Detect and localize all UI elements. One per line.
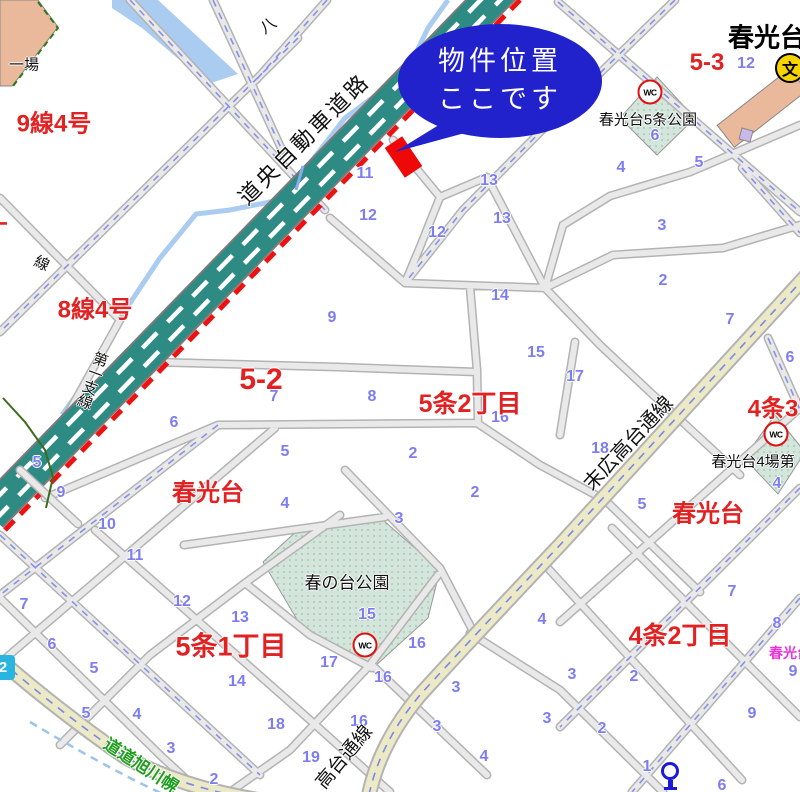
map-label: 春光台4場第 bbox=[711, 451, 794, 472]
lot-number: 4 bbox=[773, 475, 782, 493]
toilet-icon: WC bbox=[764, 422, 789, 447]
lot-number: 1 bbox=[643, 758, 652, 776]
map-label: 丁 bbox=[0, 213, 8, 248]
map-label: 春光台 bbox=[769, 643, 800, 663]
map-label: 5-2 bbox=[239, 363, 282, 397]
route-number-badge: 2 bbox=[0, 655, 15, 680]
hydrant-stem bbox=[668, 780, 673, 787]
lot-number: 3 bbox=[568, 666, 577, 684]
lot-number: 3 bbox=[167, 740, 176, 758]
lot-number: 3 bbox=[658, 217, 667, 235]
map-label: 4条2丁目 bbox=[629, 616, 732, 652]
lot-number: 11 bbox=[357, 165, 374, 183]
map-label: 春光台5条公園 bbox=[599, 109, 697, 130]
lot-number: 5 bbox=[695, 154, 704, 172]
lot-number: 5 bbox=[638, 496, 647, 514]
lot-number: 12 bbox=[737, 55, 755, 73]
map-label: 春光台 bbox=[172, 473, 244, 508]
map-label: 9線4号 bbox=[17, 104, 92, 139]
lot-number: 6 bbox=[718, 777, 727, 792]
toilet-icon: WC bbox=[353, 633, 378, 658]
lot-number: 9 bbox=[57, 484, 66, 502]
lot-number: 6 bbox=[786, 349, 795, 367]
lot-number: 9 bbox=[328, 309, 337, 327]
lot-number: 6 bbox=[170, 414, 179, 432]
map-stage: 9線4号8線4号丁5-25条2丁目4条3丁目春光台春光台5条1丁目4条2丁目5-… bbox=[0, 0, 800, 792]
lot-number: 2 bbox=[471, 484, 480, 502]
lot-number: 5 bbox=[281, 443, 290, 461]
lot-number: 12 bbox=[428, 224, 446, 242]
lot-number: 6 bbox=[651, 127, 660, 145]
lot-number: 2 bbox=[210, 771, 219, 789]
map-label: 春光台 bbox=[672, 494, 744, 529]
hydrant-icon bbox=[661, 762, 679, 792]
map-label: 4条3丁目 bbox=[748, 389, 800, 424]
callout-line-2: ここです bbox=[438, 81, 562, 119]
lot-number: 16 bbox=[408, 635, 426, 653]
lot-number: 7 bbox=[20, 596, 29, 614]
lot-number: 4 bbox=[617, 159, 626, 177]
lot-number: 5 bbox=[82, 705, 91, 723]
lot-number: 14 bbox=[491, 287, 509, 305]
lot-number: 3 bbox=[543, 710, 552, 728]
lot-number: 3 bbox=[433, 718, 442, 736]
lot-number: 6 bbox=[48, 636, 57, 654]
hydrant-ball bbox=[661, 762, 679, 780]
lot-number: 11 bbox=[127, 547, 144, 565]
lot-number: 16 bbox=[374, 669, 392, 687]
lot-number: 4 bbox=[480, 748, 489, 766]
lot-number: 17 bbox=[320, 654, 338, 672]
lot-number: 5 bbox=[33, 454, 42, 472]
lot-number: 4 bbox=[538, 611, 547, 629]
lot-number: 8 bbox=[773, 615, 782, 633]
callout-bubble: 物件位置 ここです bbox=[398, 24, 602, 138]
map-label: 5条2丁目 bbox=[419, 384, 522, 420]
lot-number: 9 bbox=[748, 705, 757, 723]
lot-number: 15 bbox=[358, 606, 376, 624]
lot-number: 4 bbox=[281, 495, 290, 513]
lot-number: 14 bbox=[228, 673, 246, 691]
map-label: 一場 bbox=[9, 54, 39, 75]
lot-number: 13 bbox=[493, 210, 511, 228]
lot-number: 7 bbox=[726, 311, 735, 329]
toilet-icon: WC bbox=[638, 80, 663, 105]
lot-number: 9 bbox=[789, 663, 798, 681]
school-icon: 文 bbox=[775, 53, 800, 83]
lot-number: 2 bbox=[659, 272, 668, 290]
lot-number: 8 bbox=[368, 388, 377, 406]
map-label: 5条1丁目 bbox=[175, 625, 286, 664]
lot-number: 13 bbox=[480, 172, 498, 190]
lot-number: 4 bbox=[133, 706, 142, 724]
lot-number: 3 bbox=[452, 679, 461, 697]
map-label: 5-3 bbox=[690, 49, 725, 77]
lot-number: 3 bbox=[395, 510, 404, 528]
lot-number: 7 bbox=[728, 583, 737, 601]
lot-number: 2 bbox=[630, 668, 639, 686]
lot-number: 2 bbox=[598, 720, 607, 738]
lot-number: 18 bbox=[267, 716, 285, 734]
lot-number: 10 bbox=[98, 516, 116, 534]
map-label: 春の台公園 bbox=[305, 569, 390, 594]
lot-number: 15 bbox=[527, 344, 545, 362]
hydrant-base bbox=[664, 787, 677, 790]
lot-number: 2 bbox=[409, 445, 418, 463]
map-label: 8線4号 bbox=[58, 290, 133, 325]
lot-number: 5 bbox=[90, 660, 99, 678]
callout-line-1: 物件位置 bbox=[438, 43, 562, 81]
lot-number: 12 bbox=[359, 207, 377, 225]
lot-number: 17 bbox=[566, 368, 584, 386]
lot-number: 12 bbox=[173, 593, 191, 611]
map-label: 春光台 bbox=[728, 18, 800, 55]
